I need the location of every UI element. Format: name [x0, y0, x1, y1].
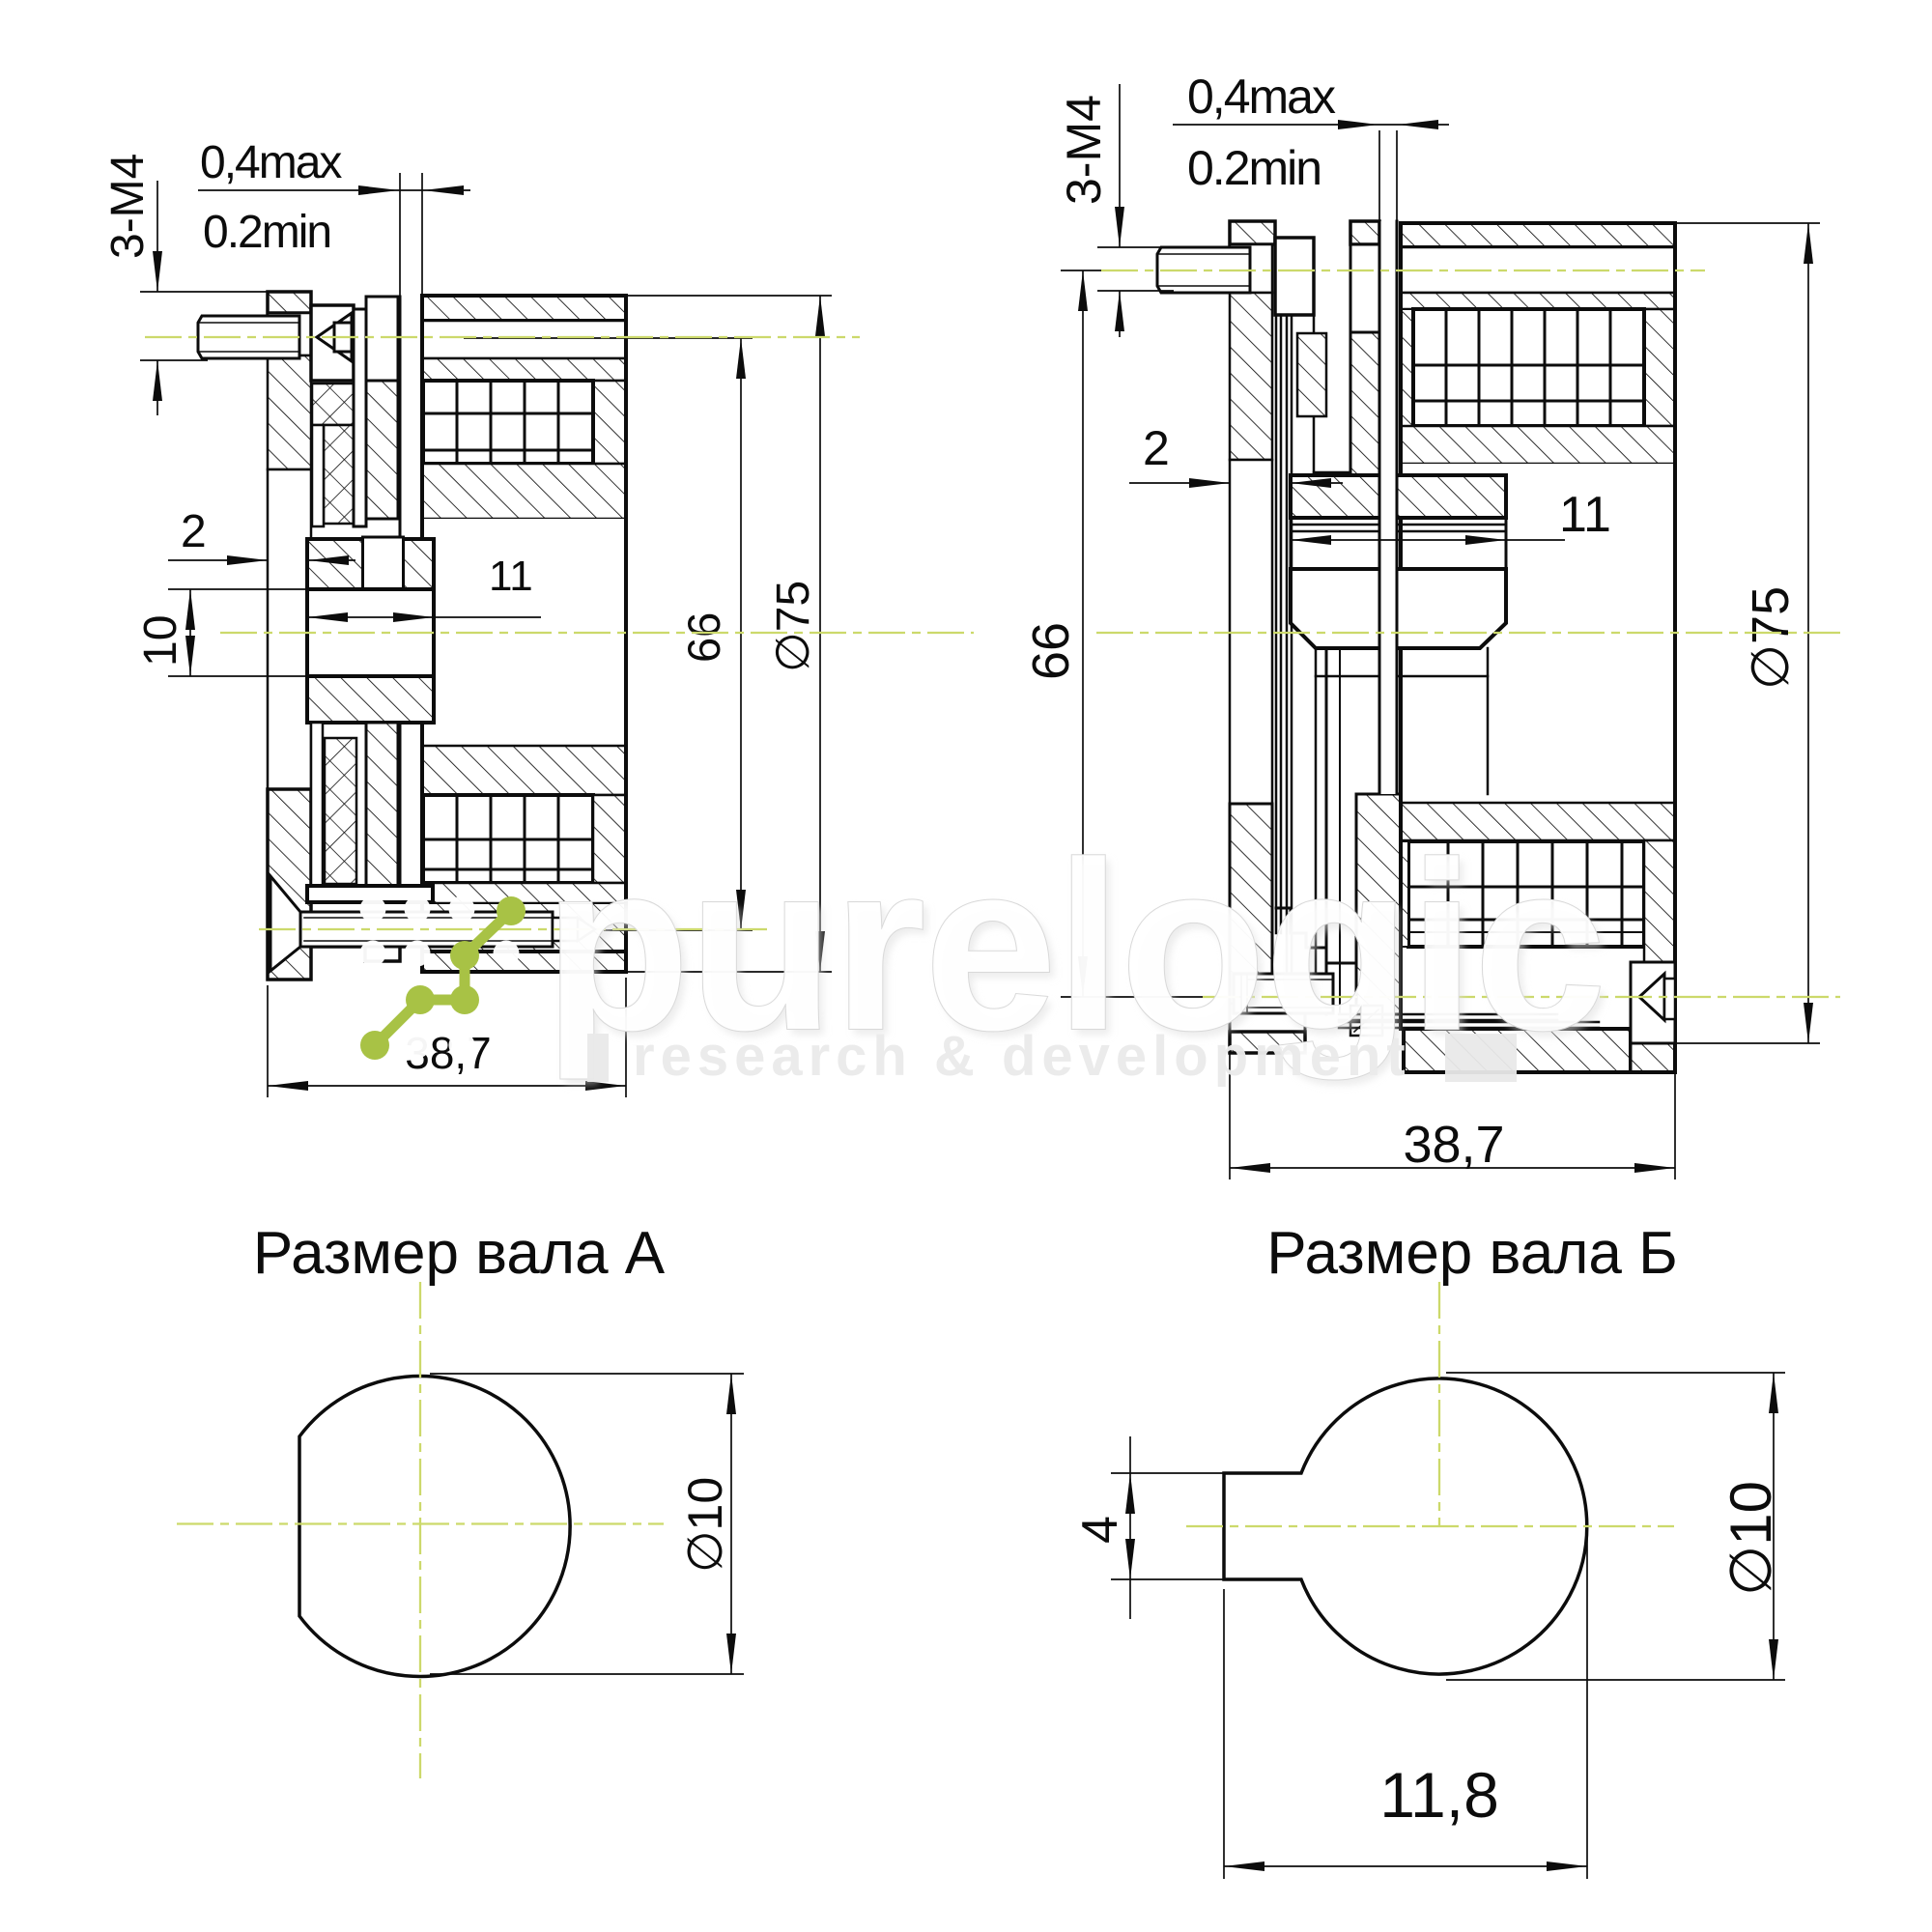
svg-text:Размер вала Б: Размер вала Б — [1266, 1220, 1678, 1287]
svg-text:0,4max: 0,4max — [200, 137, 342, 188]
svg-text:11: 11 — [489, 553, 533, 600]
svg-text:38,7: 38,7 — [1403, 1116, 1504, 1174]
svg-text:∅10: ∅10 — [678, 1477, 732, 1573]
svg-text:0,4max: 0,4max — [1187, 70, 1336, 124]
svg-text:66: 66 — [1022, 622, 1080, 680]
svg-text:∅75: ∅75 — [768, 581, 819, 672]
svg-text:10: 10 — [135, 615, 186, 667]
svg-text:2: 2 — [181, 506, 207, 557]
svg-text:66: 66 — [678, 612, 729, 663]
svg-text:11,8: 11,8 — [1379, 1759, 1499, 1831]
svg-text:research & development: research & development — [633, 1025, 1411, 1088]
svg-text:11: 11 — [1559, 487, 1611, 543]
svg-text:4: 4 — [1072, 1516, 1128, 1544]
svg-text:0.2min: 0.2min — [203, 207, 330, 258]
svg-text:0.2min: 0.2min — [1187, 141, 1321, 195]
svg-text:2: 2 — [1143, 421, 1170, 475]
svg-text:3-M4: 3-M4 — [1057, 95, 1111, 205]
svg-text:∅75: ∅75 — [1742, 586, 1800, 690]
svg-text:3-M4: 3-M4 — [102, 154, 154, 259]
svg-text:∅10: ∅10 — [1719, 1481, 1783, 1596]
svg-text:Размер вала А: Размер вала А — [253, 1220, 666, 1287]
